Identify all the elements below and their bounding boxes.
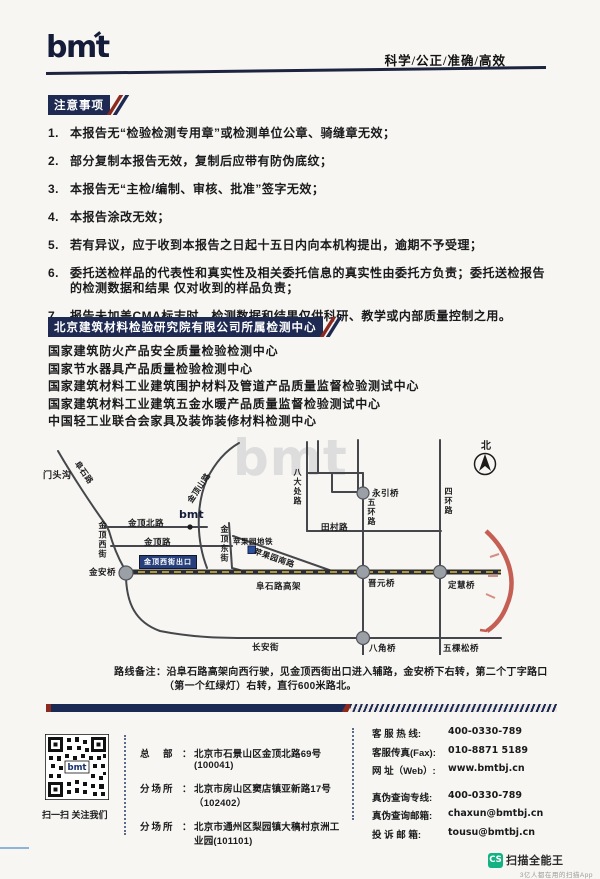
contact-row: 真伪查询邮箱: chaxun@bmtbj.cn: [372, 808, 562, 822]
header-divider: [46, 66, 546, 75]
notice-list: 1.本报告无“检验检测专用章”或检测单位公章、骑缝章无效； 2.部分复制本报告无…: [48, 126, 548, 337]
contact-value: tousu@bmtbj.cn: [448, 827, 562, 841]
stamp-arrow-tip: [480, 630, 487, 631]
footer-accent-bar: [46, 704, 557, 712]
label-dinghuiqiao: 定慧桥: [448, 579, 475, 591]
notice-item: 5.若有异议，应于收到本报告之日起十五日内向本机构提出，逾期不予受理；: [48, 238, 548, 253]
address-row: 分场所 ： 北京市房山区窦店镇亚新路17号（102402）: [140, 781, 345, 809]
label-fushilugaojia: 阜石路高架: [256, 580, 301, 592]
bmt-logo: bmt: [46, 33, 109, 63]
notice-item-text: 若有异议，应于收到本报告之日起十五日内向本机构提出，逾期不予受理；: [70, 238, 548, 253]
node-bajiaoqiao: [357, 632, 370, 645]
contact-row: 真伪查询专线: 400-0330-789: [372, 790, 562, 804]
contact-value: 010-8871 5189: [448, 745, 562, 759]
contact-value: 400-0330-789: [448, 790, 562, 804]
notice-item-text: 本报告无“主检/编制、审核、批准”签字无效；: [70, 182, 548, 197]
camscanner-watermark: CS 扫描全能王 3亿人都在用的扫描App: [488, 852, 593, 879]
notice-item-text: 部分复制本报告无效，复制后应带有防伪底纹；: [70, 154, 548, 169]
contact-row: 客 服 热 线: 400-0330-789: [372, 726, 562, 740]
footer-dotted-separator: [352, 728, 354, 820]
label-jindingdongjie: 金顶东街: [219, 525, 230, 563]
stamp-arc: [486, 531, 511, 631]
map-road-network: [58, 440, 501, 655]
centers-section-badge: 北京建筑材料检验研究院有限公司所属检测中心: [48, 317, 336, 337]
address-row: 总 部 ： 北京市石景山区金顶北路69号(100041): [140, 746, 345, 771]
camscanner-subtitle: 3亿人都在用的扫描App: [488, 869, 593, 879]
route-note: 路线备注：沿阜石路高架向西行驶，见金顶西街出口进入辅路，金安桥下右转，第二个丁字…: [114, 666, 556, 694]
notice-section-badge: 注意事项: [48, 95, 123, 115]
route-note-text: 沿阜石路高架向西行驶，见金顶西街出口进入辅路，金安桥下右转，第二个丁字路口（第一…: [164, 667, 548, 692]
contact-label: 客 服 热 线:: [372, 726, 448, 740]
notice-item-number: 3.: [48, 182, 70, 197]
notice-item-text: 本报告涂改无效；: [70, 210, 548, 225]
notice-title: 注意事项: [48, 95, 110, 115]
contact-row: 网 址（Web）: www.bmtbj.cn: [372, 763, 562, 777]
label-bajiaoqiao: 八角桥: [369, 642, 396, 654]
label-mentougou: 门头沟: [43, 468, 72, 481]
notice-item-text: 本报告无“检验检测专用章”或检测单位公章、骑缝章无效；: [70, 126, 548, 141]
label-jindingxijie: 金顶西街: [97, 521, 108, 559]
contact-label: 网 址（Web）:: [372, 763, 448, 777]
address-block: 总 部 ： 北京市石景山区金顶北路69号(100041) 分场所 ： 北京市房山…: [140, 746, 345, 857]
bmt-location-dot: [187, 524, 192, 529]
contact-label: 真伪查询专线:: [372, 790, 448, 804]
center-item: 国家建筑材料工业建筑围护材料及管道产品质量监督检验测试中心: [48, 378, 568, 396]
red-stamp-arc: [480, 531, 511, 631]
compass-north-arrow: [479, 454, 491, 471]
notice-item: 4.本报告涂改无效；: [48, 210, 548, 225]
node-jinanqiao: [119, 566, 133, 580]
route-note-label: 路线备注：: [114, 667, 167, 678]
center-item: 国家建筑防火产品安全质量检验检测中心: [48, 343, 568, 361]
contact-label: 真伪查询邮箱:: [372, 808, 448, 822]
road-changanjie: [126, 578, 501, 638]
label-sihuanlu: 四环路: [443, 487, 454, 516]
center-item: 国家建筑材料工业建筑五金水暖产品质量监督检验测试中心: [48, 396, 568, 414]
report-notice-page: bmt 科学/公正/准确/高效 注意事项 1.本报告无“检验检测专用章”或检测单…: [0, 0, 600, 879]
address-label: 分场所: [140, 819, 182, 847]
camscanner-icon: CS: [488, 853, 503, 868]
address-value: 北京市房山区窦店镇亚新路17号（102402）: [194, 781, 345, 809]
label-tiancunlu: 田村路: [321, 521, 348, 533]
contact-block: 客 服 热 线: 400-0330-789 客服传真(Fax): 010-887…: [372, 726, 562, 845]
address-colon: ：: [182, 781, 194, 809]
contact-label: 投 诉 邮 箱:: [372, 827, 448, 841]
label-badachulu: 八大处路: [292, 468, 303, 506]
notice-item: 3.本报告无“主检/编制、审核、批准”签字无效；: [48, 182, 548, 197]
label-exit-badge: 金顶西街出口: [139, 555, 197, 569]
notice-item-text: 委托送检样品的代表性和真实性及相关委托信息的真实性由委托方负责；委托送检报告的检…: [70, 266, 548, 296]
label-yongyinqiao: 永引桥: [372, 487, 399, 499]
address-value: 北京市石景山区金顶北路69号(100041): [194, 746, 345, 771]
node-dinghuiqiao: [434, 566, 447, 579]
footer-bar-solid: [46, 704, 346, 712]
footer-dotted-separator: [124, 735, 126, 835]
camscanner-name: 扫描全能王: [506, 852, 564, 868]
label-wukesongqiao: 五棵松桥: [443, 642, 479, 654]
centers-title: 北京建筑材料检验研究院有限公司所属检测中心: [48, 317, 323, 337]
centers-list: 国家建筑防火产品安全质量检验检测中心 国家节水器具产品质量检验检测中心 国家建筑…: [48, 343, 568, 431]
label-jindinglu: 金顶路: [144, 536, 171, 548]
address-colon: ：: [182, 819, 194, 847]
camscanner-row: CS 扫描全能王: [488, 852, 593, 868]
map-roads-svg: [35, 437, 587, 655]
road-block-north: [307, 440, 363, 492]
address-value: 北京市通州区梨园镇大稿村京洲工业园(101101): [194, 819, 345, 847]
address-label: 分场所: [140, 781, 182, 809]
qr-caption: 扫一扫 关注我们: [42, 808, 132, 821]
stamp-marks: [486, 554, 499, 598]
qr-code: bmt: [45, 734, 109, 805]
label-north: 北: [481, 437, 492, 452]
address-row: 分场所 ： 北京市通州区梨园镇大稿村京洲工业园(101101): [140, 819, 345, 847]
address-colon: ：: [182, 746, 194, 771]
center-item: 中国轻工业联合会家具及装饰装修材料检测中心: [48, 413, 568, 431]
contact-label: 客服传真(Fax):: [372, 745, 448, 759]
notice-item: 1.本报告无“检验检测专用章”或检测单位公章、骑缝章无效；: [48, 126, 548, 141]
notice-item-number: 2.: [48, 154, 70, 169]
notice-item-number: 6.: [48, 266, 70, 296]
qr-code-svg: bmt: [45, 734, 109, 800]
scan-artifact-line: [0, 847, 29, 849]
contact-value: www.bmtbj.cn: [448, 763, 562, 777]
qr-center-logo: bmt: [67, 763, 86, 773]
notice-item-number: 1.: [48, 126, 70, 141]
road-jindingdongjie: [229, 523, 247, 572]
notice-item-number: 4.: [48, 210, 70, 225]
contact-row: 投 诉 邮 箱: tousu@bmtbj.cn: [372, 827, 562, 841]
label-jindingbeilu: 金顶北路: [128, 517, 164, 529]
notice-item: 2.部分复制本报告无效，复制后应带有防伪底纹；: [48, 154, 548, 169]
label-changanjie: 长安街: [252, 641, 279, 653]
address-label: 总 部: [140, 746, 182, 771]
location-map: bmt: [35, 437, 587, 655]
footer-bar-stripes: [350, 704, 557, 712]
contact-value: chaxun@bmtbj.cn: [448, 808, 562, 822]
label-jinanqiao: 金安桥: [89, 566, 116, 578]
label-wuhuanlu: 五环路: [366, 498, 377, 527]
label-bmt-marker: bmt: [179, 508, 204, 521]
label-jinyuanqiao: 晋元桥: [368, 577, 395, 589]
center-item: 国家节水器具产品质量检验检测中心: [48, 361, 568, 379]
label-pingguoyuan-metro: 苹果园地铁: [233, 536, 273, 547]
contact-value: 400-0330-789: [448, 726, 562, 740]
contact-row: 客服传真(Fax): 010-8871 5189: [372, 745, 562, 759]
notice-item-number: 5.: [48, 238, 70, 253]
contact-group-gap: [372, 782, 562, 790]
notice-item: 6.委托送检样品的代表性和真实性及相关委托信息的真实性由委托方负责；委托送检报告…: [48, 266, 548, 296]
